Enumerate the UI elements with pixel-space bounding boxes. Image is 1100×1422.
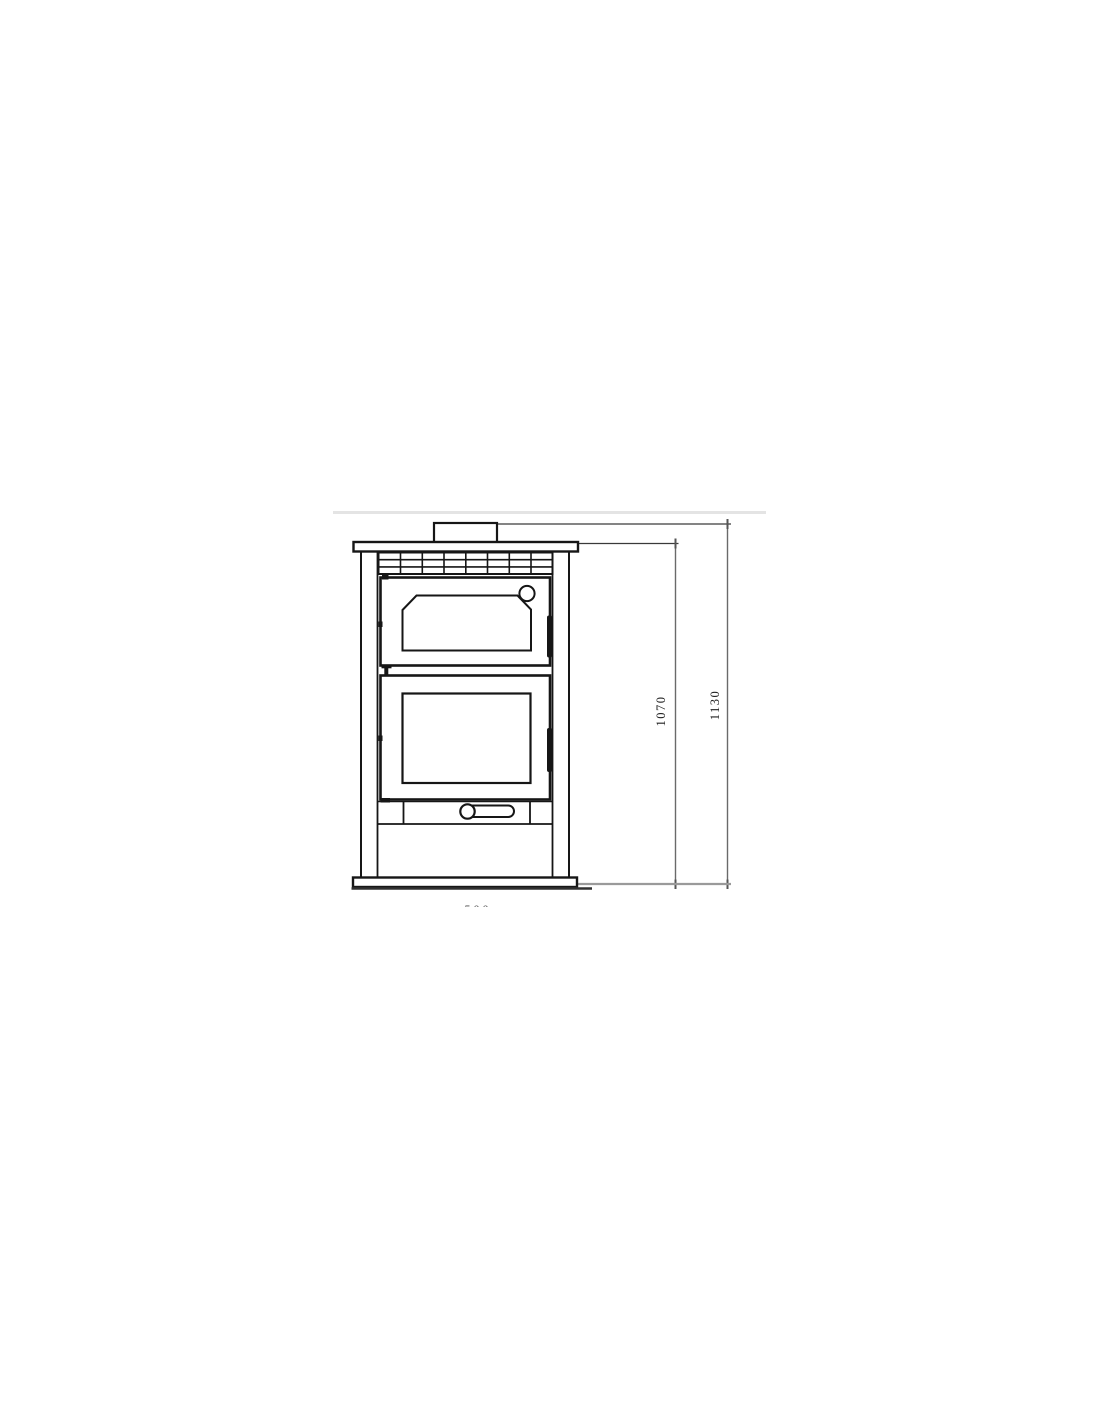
dim-label-1130: 1130 xyxy=(707,677,723,733)
firebox-door-latch xyxy=(547,728,552,772)
firebox-door-window xyxy=(403,694,531,784)
dim-label-1070: 1070 xyxy=(653,683,669,739)
dim-label-width-cropped: 500 xyxy=(456,903,500,907)
ash-drawer-handle-knob xyxy=(460,804,474,818)
oven-door-hinge-top xyxy=(382,575,389,580)
oven-door-hinge-middle xyxy=(379,622,383,628)
center-hinge-bar xyxy=(382,665,392,669)
oven-door-knob xyxy=(519,586,534,601)
base-plinth xyxy=(353,878,577,888)
flue-collar xyxy=(434,523,497,543)
top-plate xyxy=(354,542,579,552)
firebox-door-hinge xyxy=(379,736,383,742)
oven-door-latch xyxy=(547,616,552,658)
page: 1070 1130 500 xyxy=(0,0,1100,1422)
dim-label-width-text: 500 xyxy=(456,903,500,907)
stove-technical-drawing xyxy=(0,0,1100,1422)
oven-door-window xyxy=(403,596,532,651)
